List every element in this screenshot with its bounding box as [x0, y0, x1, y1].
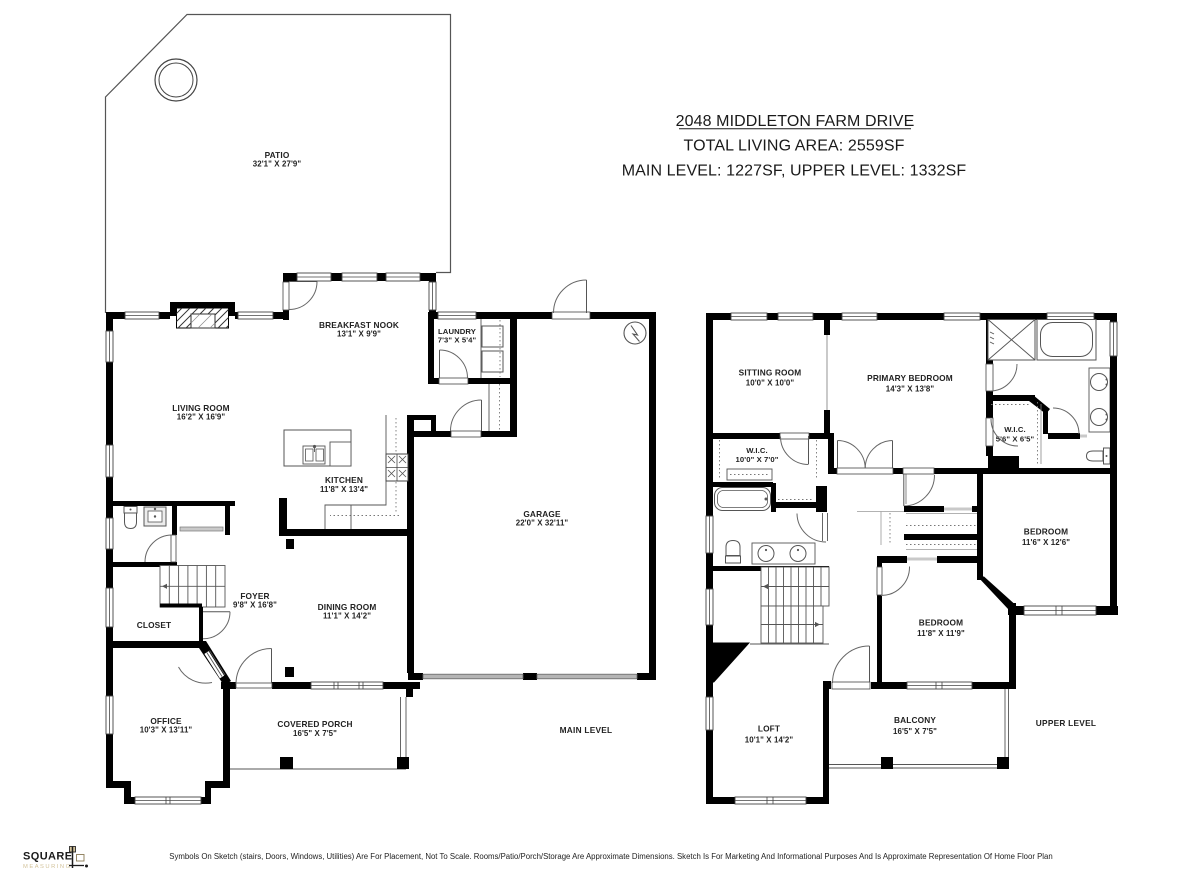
svg-text:GARAGE: GARAGE: [523, 509, 561, 519]
svg-text:LOFT: LOFT: [758, 724, 780, 734]
svg-text:SQUARE: SQUARE: [23, 851, 72, 863]
svg-text:11'6" X 12'6": 11'6" X 12'6": [1022, 538, 1070, 547]
svg-text:BEDROOM: BEDROOM: [919, 618, 963, 628]
svg-text:7'3" X 5'4": 7'3" X 5'4": [438, 336, 477, 345]
svg-text:SITTING ROOM: SITTING ROOM: [739, 368, 802, 378]
svg-text:10'3" X 13'11": 10'3" X 13'11": [140, 726, 193, 735]
svg-text:LIVING ROOM: LIVING ROOM: [172, 403, 229, 413]
svg-text:11'8" X 13'4": 11'8" X 13'4": [320, 485, 368, 494]
svg-text:W.I.C.: W.I.C.: [1004, 425, 1026, 434]
svg-text:BALCONY: BALCONY: [894, 715, 936, 725]
svg-text:TOTAL LIVING AREA: 2559SF: TOTAL LIVING AREA: 2559SF: [684, 138, 905, 155]
svg-text:5'6" X 6'5": 5'6" X 6'5": [996, 435, 1035, 444]
svg-text:CLOSET: CLOSET: [137, 620, 172, 630]
svg-text:16'5" X 7'5": 16'5" X 7'5": [293, 729, 337, 738]
svg-text:FOYER: FOYER: [240, 591, 269, 601]
svg-text:KITCHEN: KITCHEN: [325, 475, 363, 485]
svg-text:11'1" X 14'2": 11'1" X 14'2": [323, 612, 371, 621]
svg-text:PATIO: PATIO: [265, 150, 290, 160]
svg-text:11'8" X 11'9": 11'8" X 11'9": [917, 629, 965, 638]
svg-text:10'0" X 10'0": 10'0" X 10'0": [746, 379, 795, 388]
svg-text:2048 MIDDLETON FARM DRIVE: 2048 MIDDLETON FARM DRIVE: [676, 113, 915, 130]
svg-text:16'2" X 16'9": 16'2" X 16'9": [177, 413, 226, 422]
svg-text:OFFICE: OFFICE: [150, 716, 182, 726]
svg-text:BREAKFAST NOOK: BREAKFAST NOOK: [319, 320, 399, 330]
svg-text:9'8" X 16'8": 9'8" X 16'8": [233, 601, 277, 610]
svg-text:13'1" X 9'9": 13'1" X 9'9": [337, 330, 381, 339]
svg-text:MAIN LEVEL: 1227SF, UPPER LEVE: MAIN LEVEL: 1227SF, UPPER LEVEL: 1332SF: [622, 163, 967, 180]
svg-text:DINING ROOM: DINING ROOM: [318, 602, 377, 612]
svg-text:BEDROOM: BEDROOM: [1024, 527, 1068, 537]
svg-text:10'0" X 7'0": 10'0" X 7'0": [736, 455, 779, 464]
svg-text:14'3" X 13'8": 14'3" X 13'8": [886, 385, 935, 394]
svg-text:32'1" X 27'9": 32'1" X 27'9": [253, 160, 302, 169]
svg-text:Symbols On Sketch (stairs, Doo: Symbols On Sketch (stairs, Doors, Window…: [169, 852, 1052, 861]
svg-text:22'0" X 32'11": 22'0" X 32'11": [516, 519, 569, 528]
svg-text:16'5" X 7'5": 16'5" X 7'5": [893, 727, 937, 736]
svg-text:PRIMARY BEDROOM: PRIMARY BEDROOM: [867, 373, 953, 383]
svg-text:MEASURING: MEASURING: [23, 864, 72, 870]
svg-text:W.I.C.: W.I.C.: [746, 446, 768, 455]
svg-text:MAIN LEVEL: MAIN LEVEL: [560, 725, 613, 735]
svg-text:COVERED PORCH: COVERED PORCH: [277, 719, 352, 729]
svg-text:UPPER LEVEL: UPPER LEVEL: [1036, 718, 1096, 728]
svg-text:10'1" X 14'2": 10'1" X 14'2": [745, 736, 794, 745]
